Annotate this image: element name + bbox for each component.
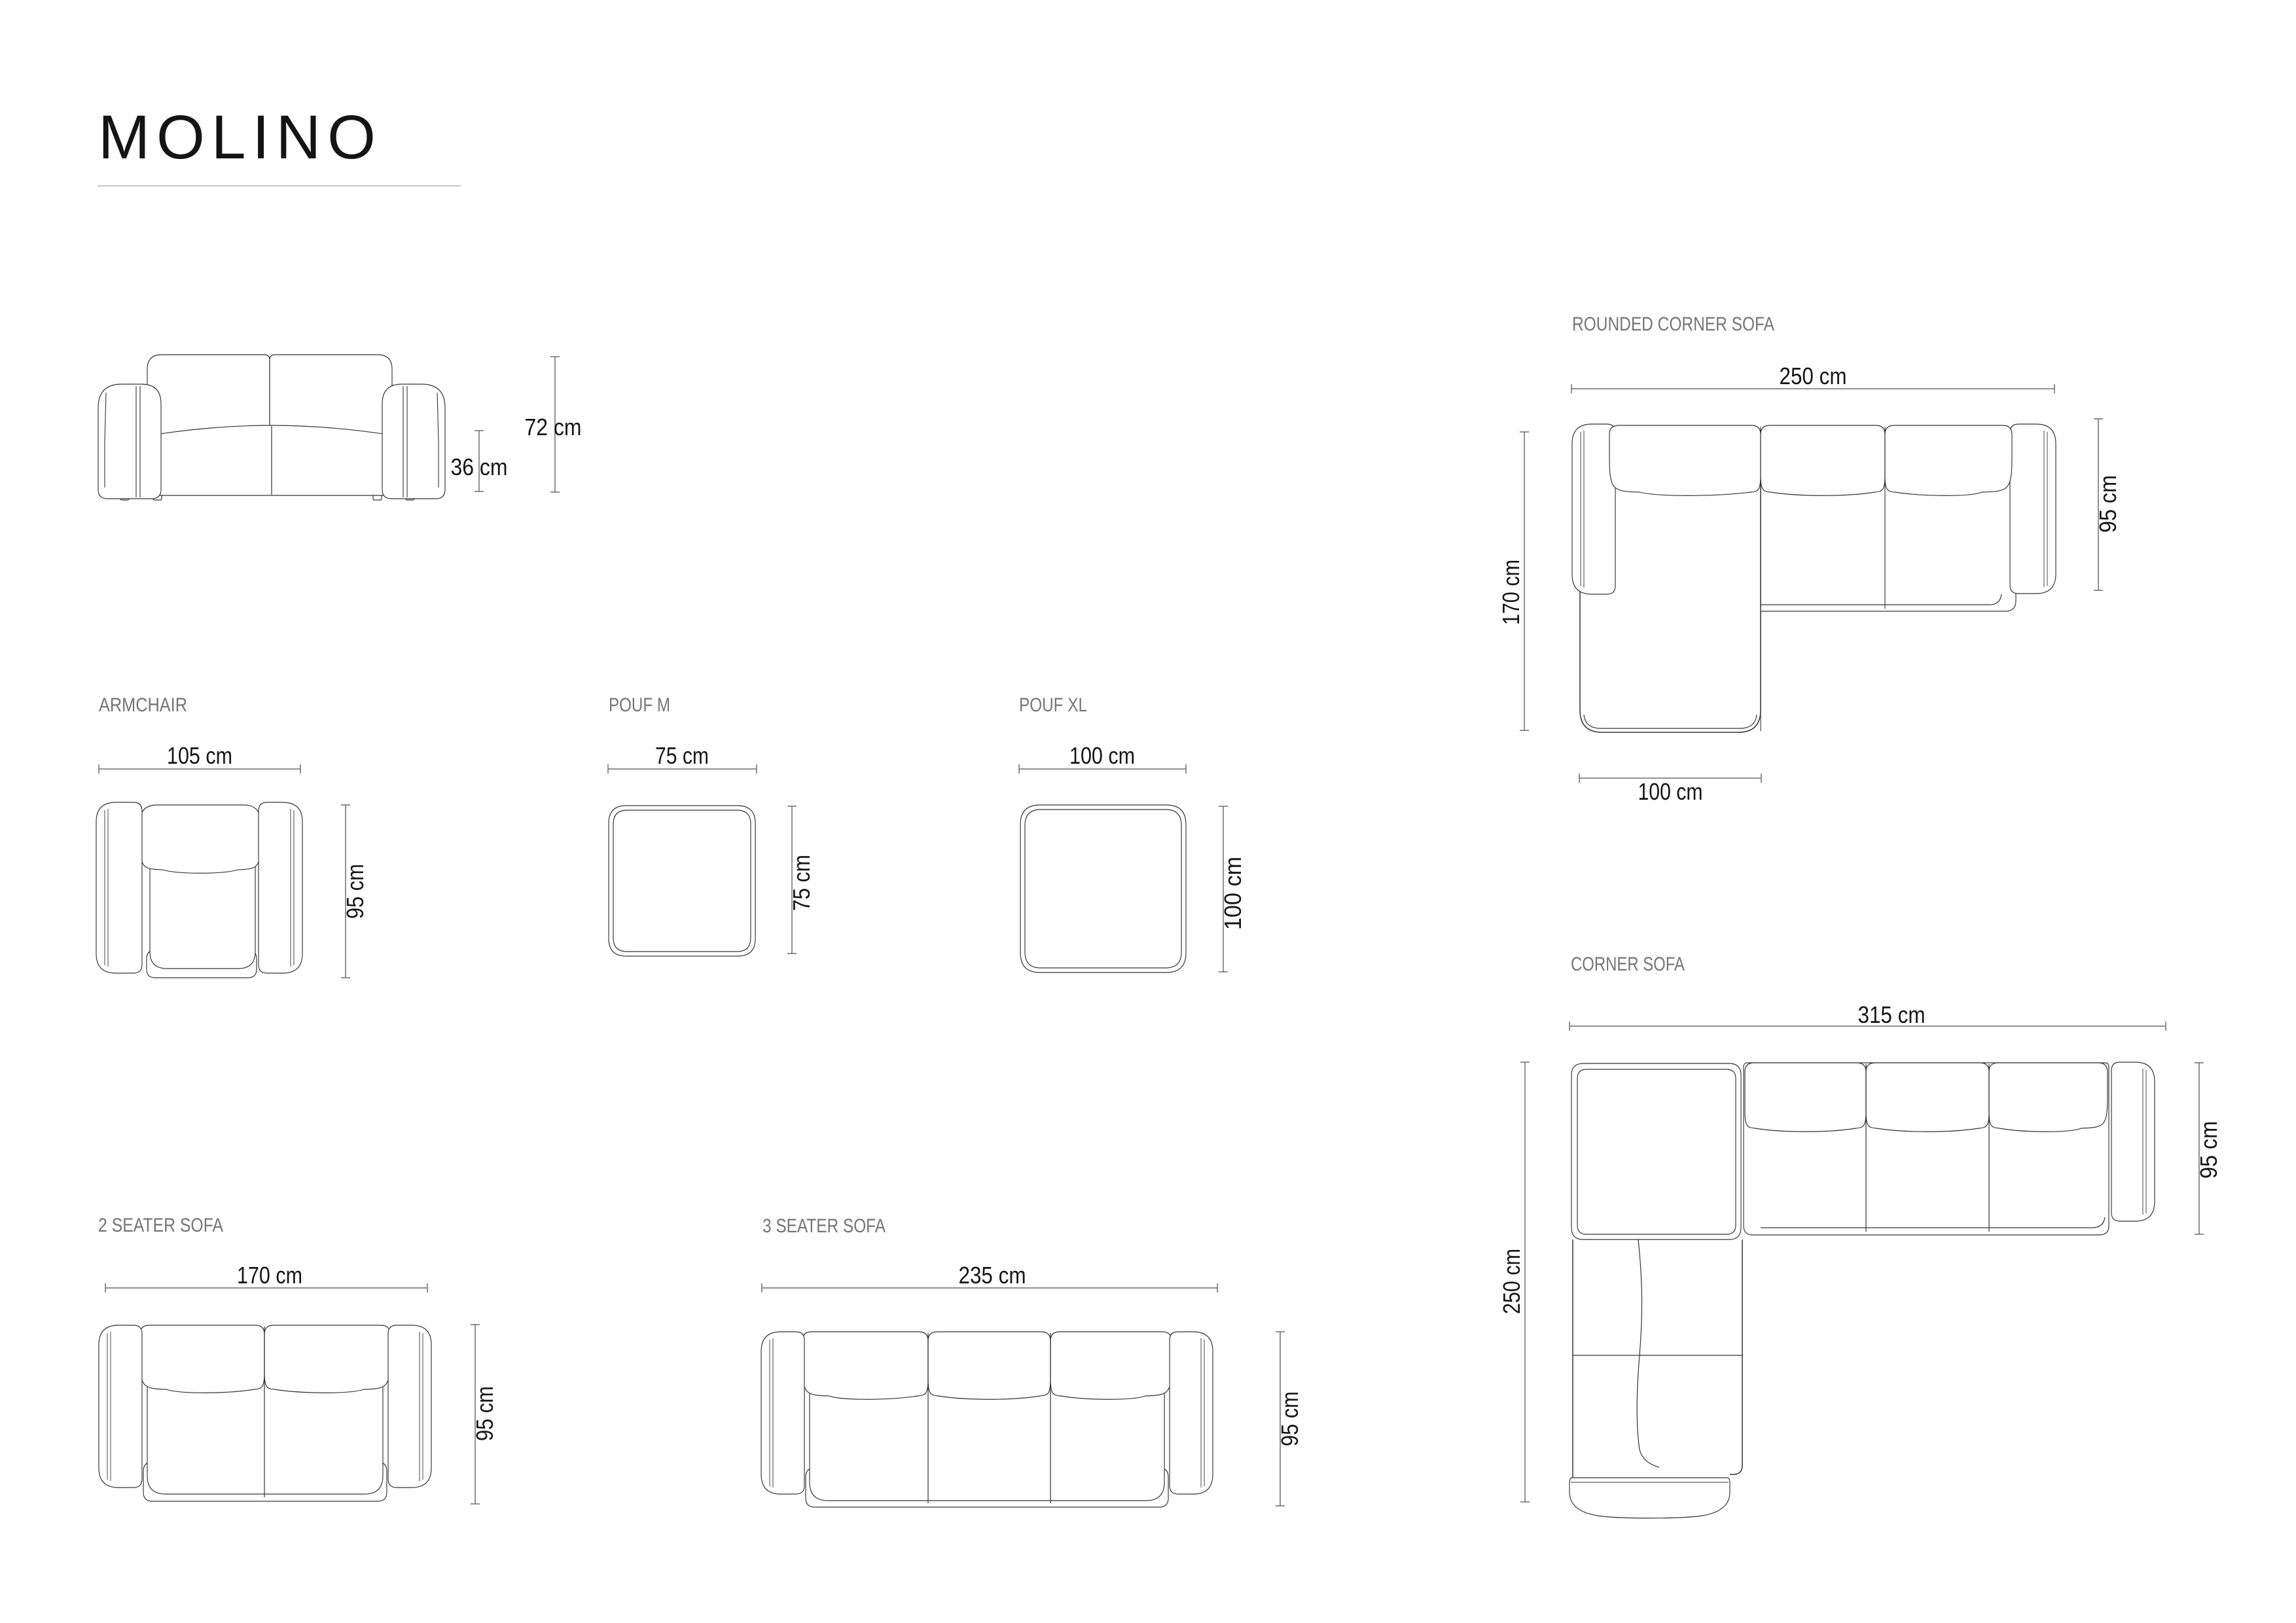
svg-text:250 cm: 250 cm xyxy=(1498,1249,1525,1314)
svg-text:170 cm: 170 cm xyxy=(237,1262,302,1289)
svg-text:95 cm: 95 cm xyxy=(2094,475,2121,533)
svg-text:ARMCHAIR: ARMCHAIR xyxy=(99,694,187,716)
svg-text:95 cm: 95 cm xyxy=(1276,1391,1303,1446)
svg-text:315 cm: 315 cm xyxy=(1858,1001,1926,1028)
svg-text:36 cm: 36 cm xyxy=(451,454,508,480)
svg-text:POUF XL: POUF XL xyxy=(1019,694,1087,716)
svg-text:72 cm: 72 cm xyxy=(525,414,582,440)
svg-text:100 cm: 100 cm xyxy=(1219,857,1246,930)
svg-text:105 cm: 105 cm xyxy=(167,742,232,769)
svg-text:ROUNDED CORNER SOFA: ROUNDED CORNER SOFA xyxy=(1572,313,1774,335)
svg-text:95 cm: 95 cm xyxy=(2195,1121,2222,1179)
svg-text:235 cm: 235 cm xyxy=(959,1262,1026,1289)
svg-text:95 cm: 95 cm xyxy=(471,1386,498,1441)
svg-text:3 SEATER SOFA: 3 SEATER SOFA xyxy=(762,1215,886,1237)
svg-text:100 cm: 100 cm xyxy=(1069,742,1135,769)
svg-text:75 cm: 75 cm xyxy=(788,855,815,911)
svg-text:2 SEATER SOFA: 2 SEATER SOFA xyxy=(98,1215,223,1236)
svg-text:MOLINO: MOLINO xyxy=(98,103,376,172)
svg-text:75 cm: 75 cm xyxy=(655,742,709,769)
svg-text:170 cm: 170 cm xyxy=(1498,560,1524,625)
svg-text:250 cm: 250 cm xyxy=(1780,363,1847,389)
svg-text:100 cm: 100 cm xyxy=(1638,778,1703,805)
svg-text:95 cm: 95 cm xyxy=(342,864,368,919)
svg-text:POUF M: POUF M xyxy=(609,694,670,716)
svg-text:CORNER SOFA: CORNER SOFA xyxy=(1571,954,1685,975)
